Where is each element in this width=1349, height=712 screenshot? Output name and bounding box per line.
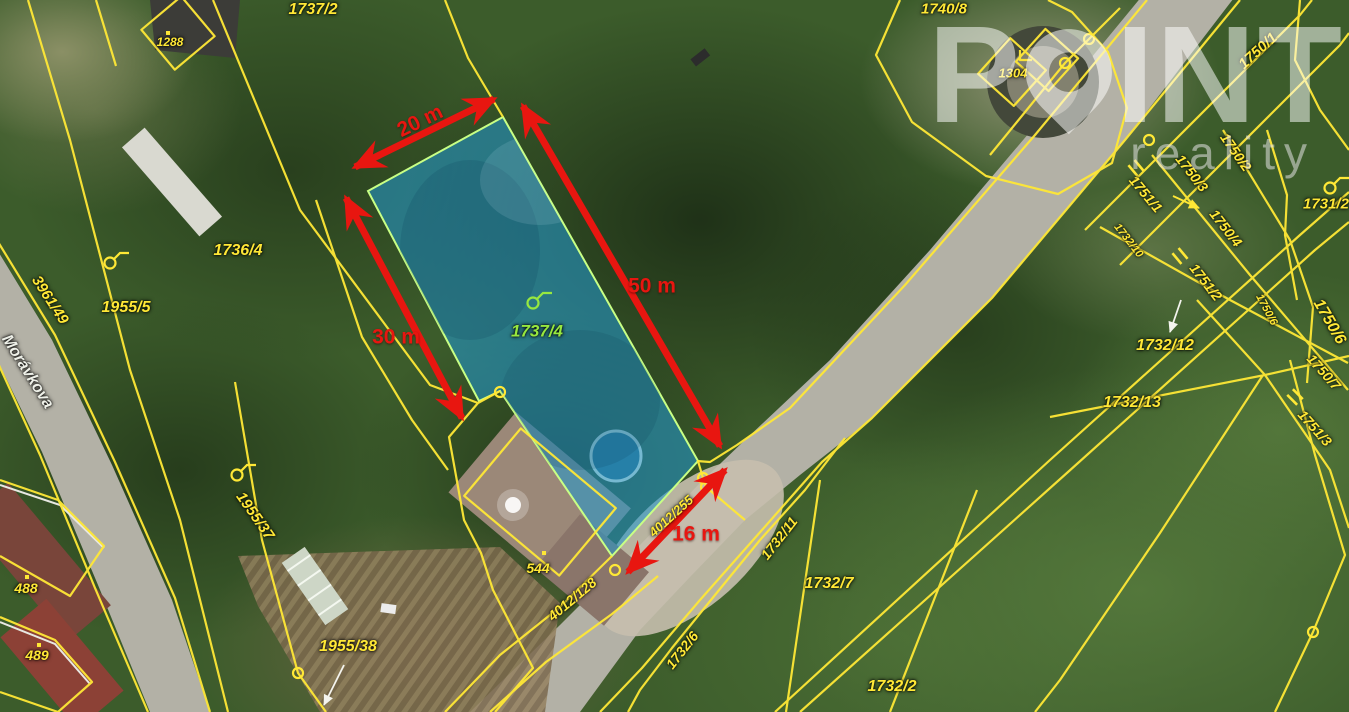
aerial-cadastral-map[interactable]: 1737/21740/8128813041750/11731/2Morávkov…	[0, 0, 1349, 712]
label-pointer-arrow-icon	[1170, 300, 1181, 332]
boundary-point-icon	[1144, 135, 1154, 145]
car-dark	[690, 48, 710, 66]
parcel-dot-icon	[25, 575, 29, 579]
double-tick-icon	[1172, 248, 1187, 264]
parcel-dot-icon	[37, 643, 41, 647]
parcel-dot-icon	[542, 551, 546, 555]
culture-symbol-icon	[105, 253, 130, 269]
parcel-dot-icon	[166, 31, 170, 35]
culture-symbol-icon	[1325, 178, 1349, 194]
dark-building	[150, 0, 240, 58]
roof-glint-core	[505, 497, 521, 513]
white-building-roof	[122, 128, 222, 237]
map-overlay	[0, 0, 1349, 712]
pond-center	[1007, 46, 1079, 118]
